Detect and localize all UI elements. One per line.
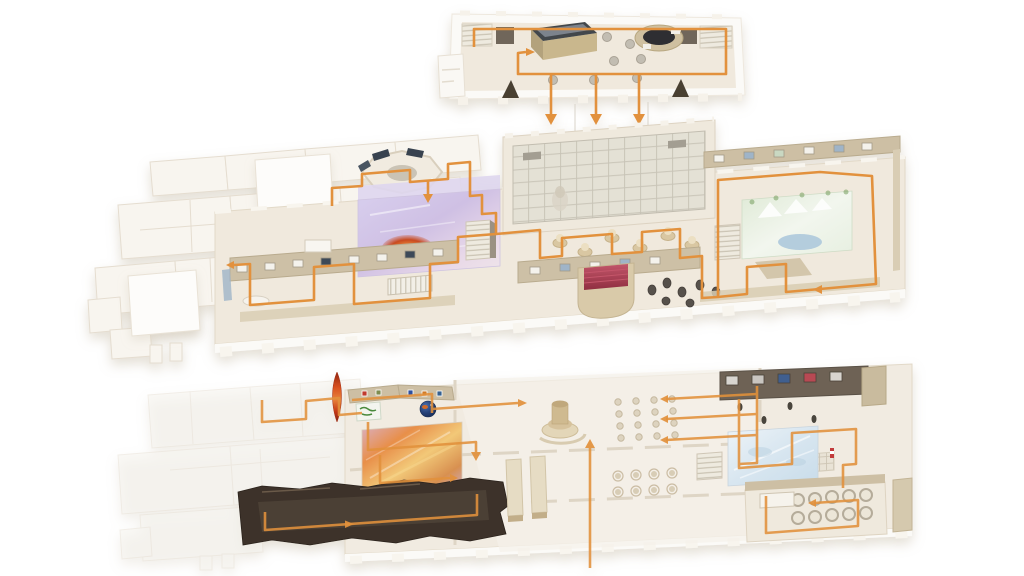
restroom-annex xyxy=(438,54,465,98)
northeast-wall xyxy=(862,366,886,406)
main-floor xyxy=(88,119,905,363)
upper-front-notches xyxy=(458,97,742,101)
floor-map-panel xyxy=(356,402,381,421)
flag-exhibit xyxy=(830,448,834,458)
exploded-floorplan-illustration xyxy=(0,0,1024,576)
stair-doorway-right xyxy=(681,28,697,44)
red-theater xyxy=(578,263,634,318)
east-end-wall xyxy=(893,478,912,532)
upper-floor xyxy=(438,13,745,125)
stairwell-left xyxy=(462,24,492,46)
diagram-canvas xyxy=(0,0,1024,576)
main-staircase-center xyxy=(466,220,496,260)
skylight-atrium xyxy=(503,119,715,235)
lower-staircase-east xyxy=(697,452,722,480)
lower-floor xyxy=(118,364,912,570)
dark-cave-gallery xyxy=(238,478,508,545)
